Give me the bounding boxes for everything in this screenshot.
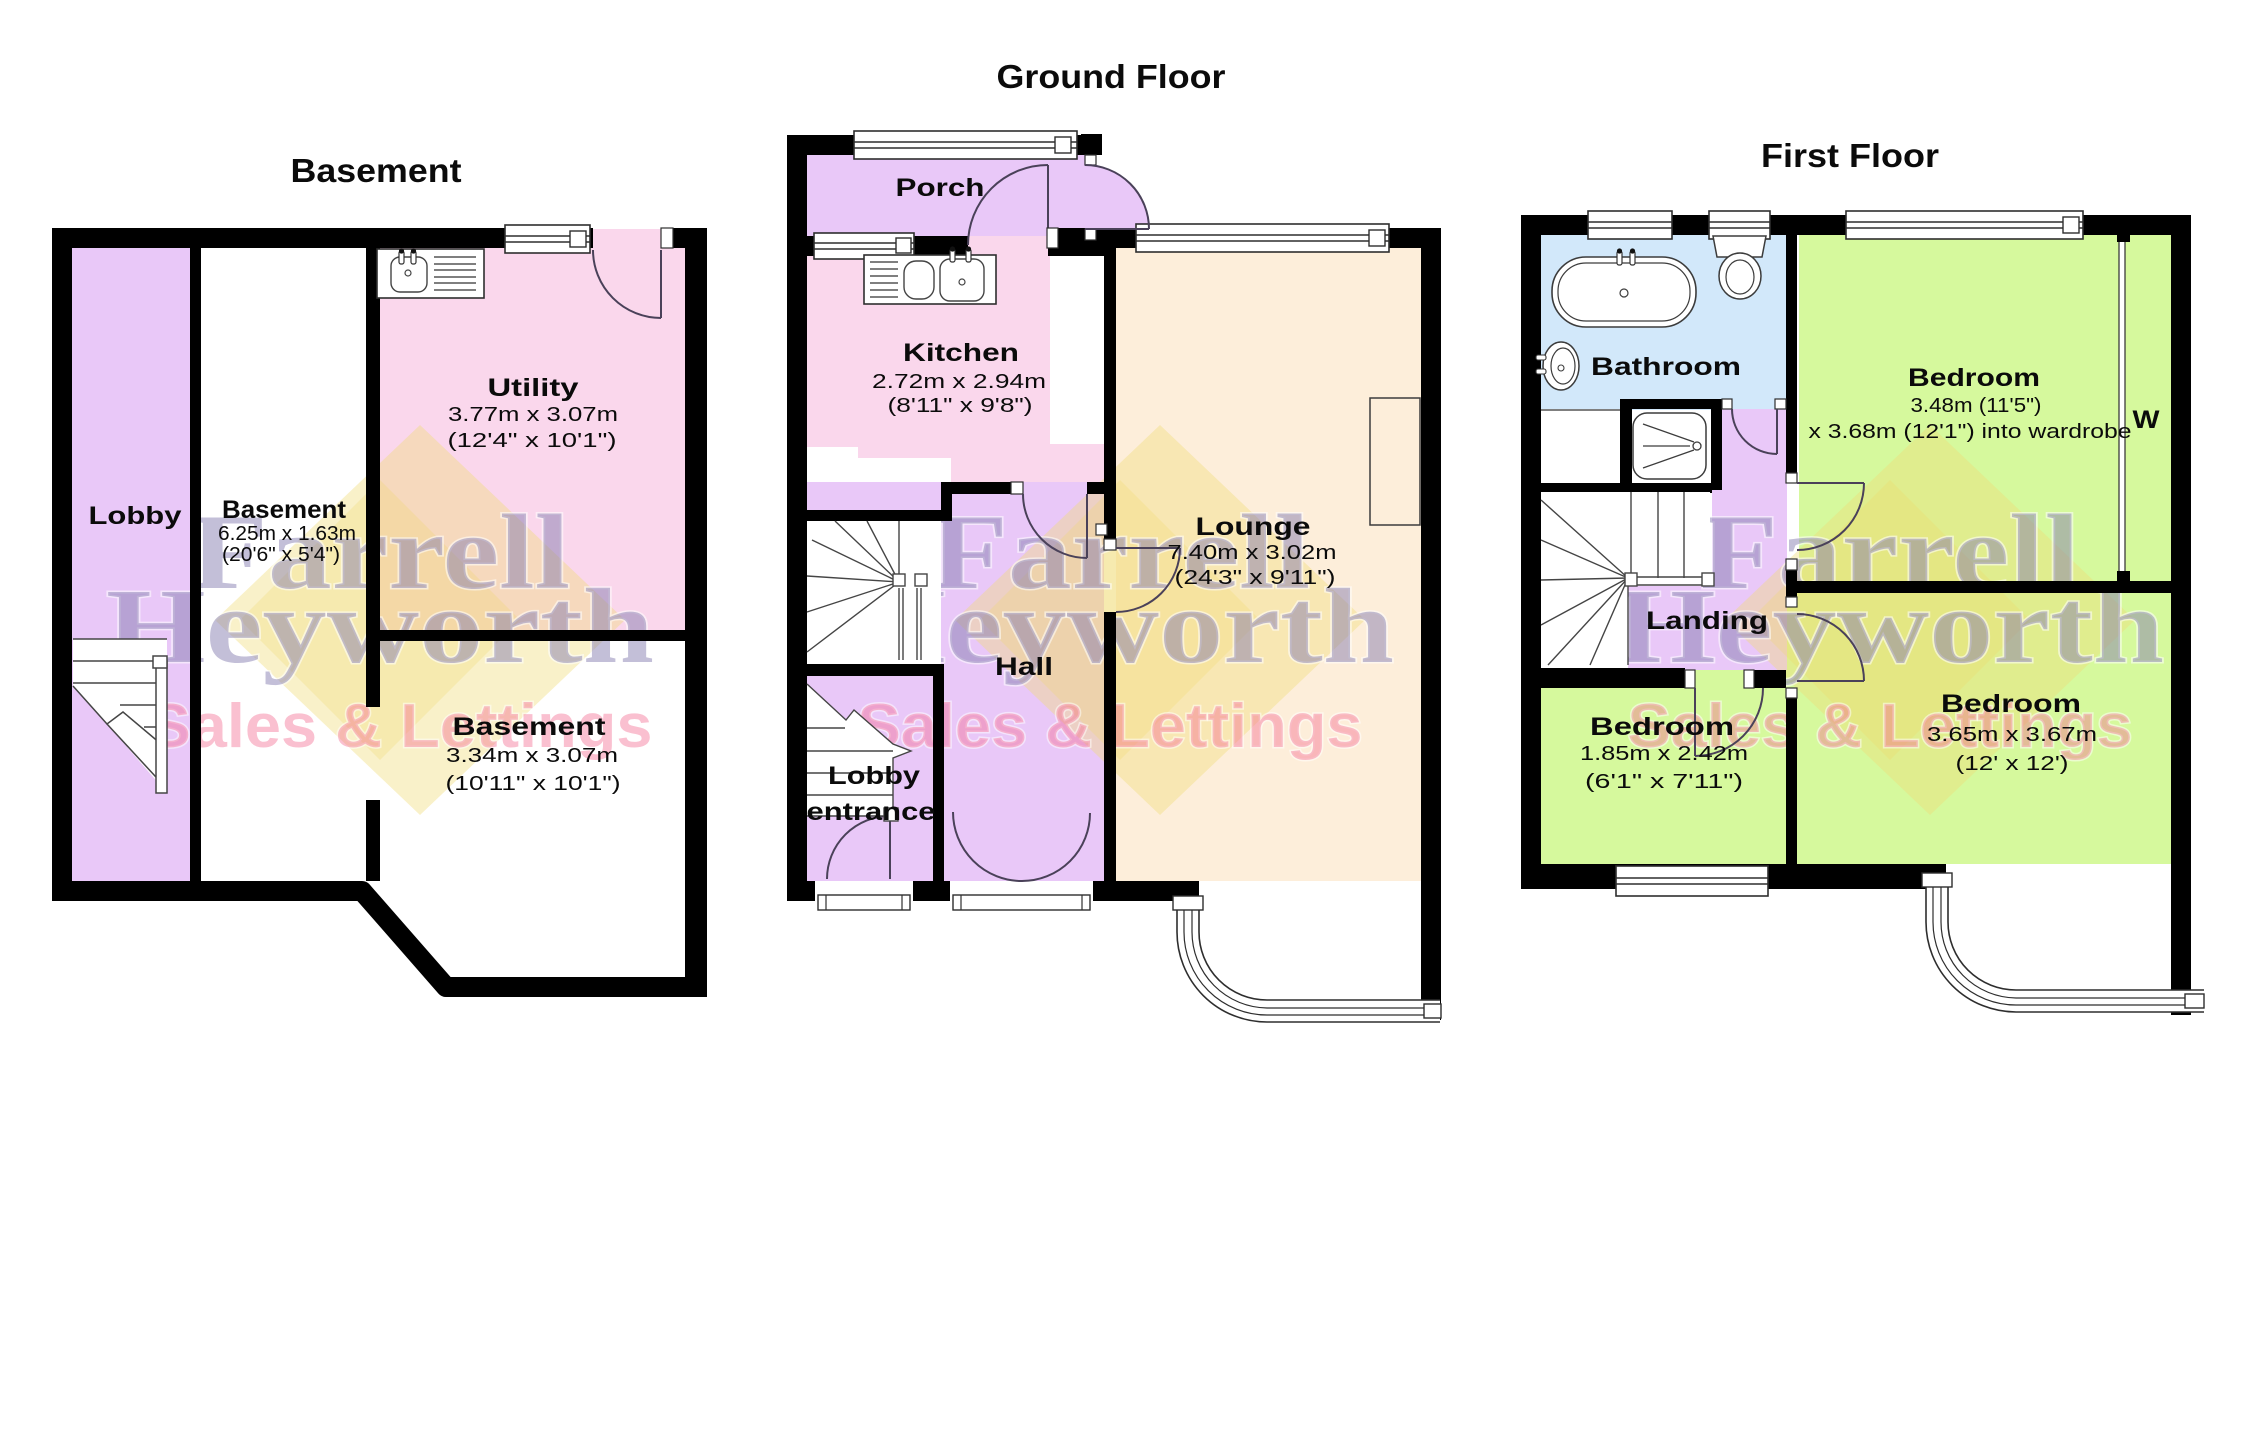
svg-text:Lobby: Lobby xyxy=(828,762,920,790)
svg-text:(12'4" x 10'1"): (12'4" x 10'1") xyxy=(448,430,617,452)
svg-text:6.25m x 1.63m: 6.25m x 1.63m xyxy=(218,523,356,545)
svg-text:Utility: Utility xyxy=(488,374,579,402)
svg-text:Hall: Hall xyxy=(995,653,1053,681)
svg-text:Lobby: Lobby xyxy=(89,502,182,530)
svg-text:Basement: Basement xyxy=(291,152,462,189)
svg-text:Landing: Landing xyxy=(1646,607,1768,635)
svg-text:3.34m x 3.07m: 3.34m x 3.07m xyxy=(446,745,618,767)
svg-text:(10'11" x 10'1"): (10'11" x 10'1") xyxy=(446,773,621,795)
svg-text:7.40m x 3.02m: 7.40m x 3.02m xyxy=(1168,542,1337,564)
svg-text:Bedroom: Bedroom xyxy=(1941,690,2081,718)
svg-text:2.72m x 2.94m: 2.72m x 2.94m xyxy=(872,371,1046,393)
svg-text:Porch: Porch xyxy=(896,174,985,202)
svg-text:Bedroom: Bedroom xyxy=(1908,364,2040,392)
svg-text:Bedroom: Bedroom xyxy=(1590,713,1734,741)
svg-text:3.77m x 3.07m: 3.77m x 3.07m xyxy=(448,404,618,426)
svg-text:First Floor: First Floor xyxy=(1761,137,1939,174)
svg-text:Ground Floor: Ground Floor xyxy=(997,58,1226,95)
svg-text:(8'11" x 9'8"): (8'11" x 9'8") xyxy=(888,395,1033,417)
svg-text:Basement: Basement xyxy=(453,713,607,741)
svg-text:Basement: Basement xyxy=(222,496,347,524)
svg-text:(12' x 12'): (12' x 12') xyxy=(1956,753,2069,775)
svg-text:Kitchen: Kitchen xyxy=(903,339,1019,367)
svg-text:Bathroom: Bathroom xyxy=(1591,353,1741,381)
svg-text:W: W xyxy=(2133,406,2160,434)
svg-text:(24'3" x 9'11"): (24'3" x 9'11") xyxy=(1175,567,1336,589)
svg-text:1.85m x 2.42m: 1.85m x 2.42m xyxy=(1580,743,1748,765)
svg-text:3.65m x 3.67m: 3.65m x 3.67m xyxy=(1927,724,2097,746)
svg-text:Lounge: Lounge xyxy=(1196,513,1311,541)
svg-text:x 3.68m (12'1") into wardrobe: x 3.68m (12'1") into wardrobe xyxy=(1809,421,2132,443)
svg-text:(6'1" x 7'11"): (6'1" x 7'11") xyxy=(1585,771,1743,793)
svg-text:entrance: entrance xyxy=(807,798,936,826)
svg-text:(20'6" x 5'4"): (20'6" x 5'4") xyxy=(222,544,340,566)
svg-text:3.48m (11'5"): 3.48m (11'5") xyxy=(1911,395,2042,417)
